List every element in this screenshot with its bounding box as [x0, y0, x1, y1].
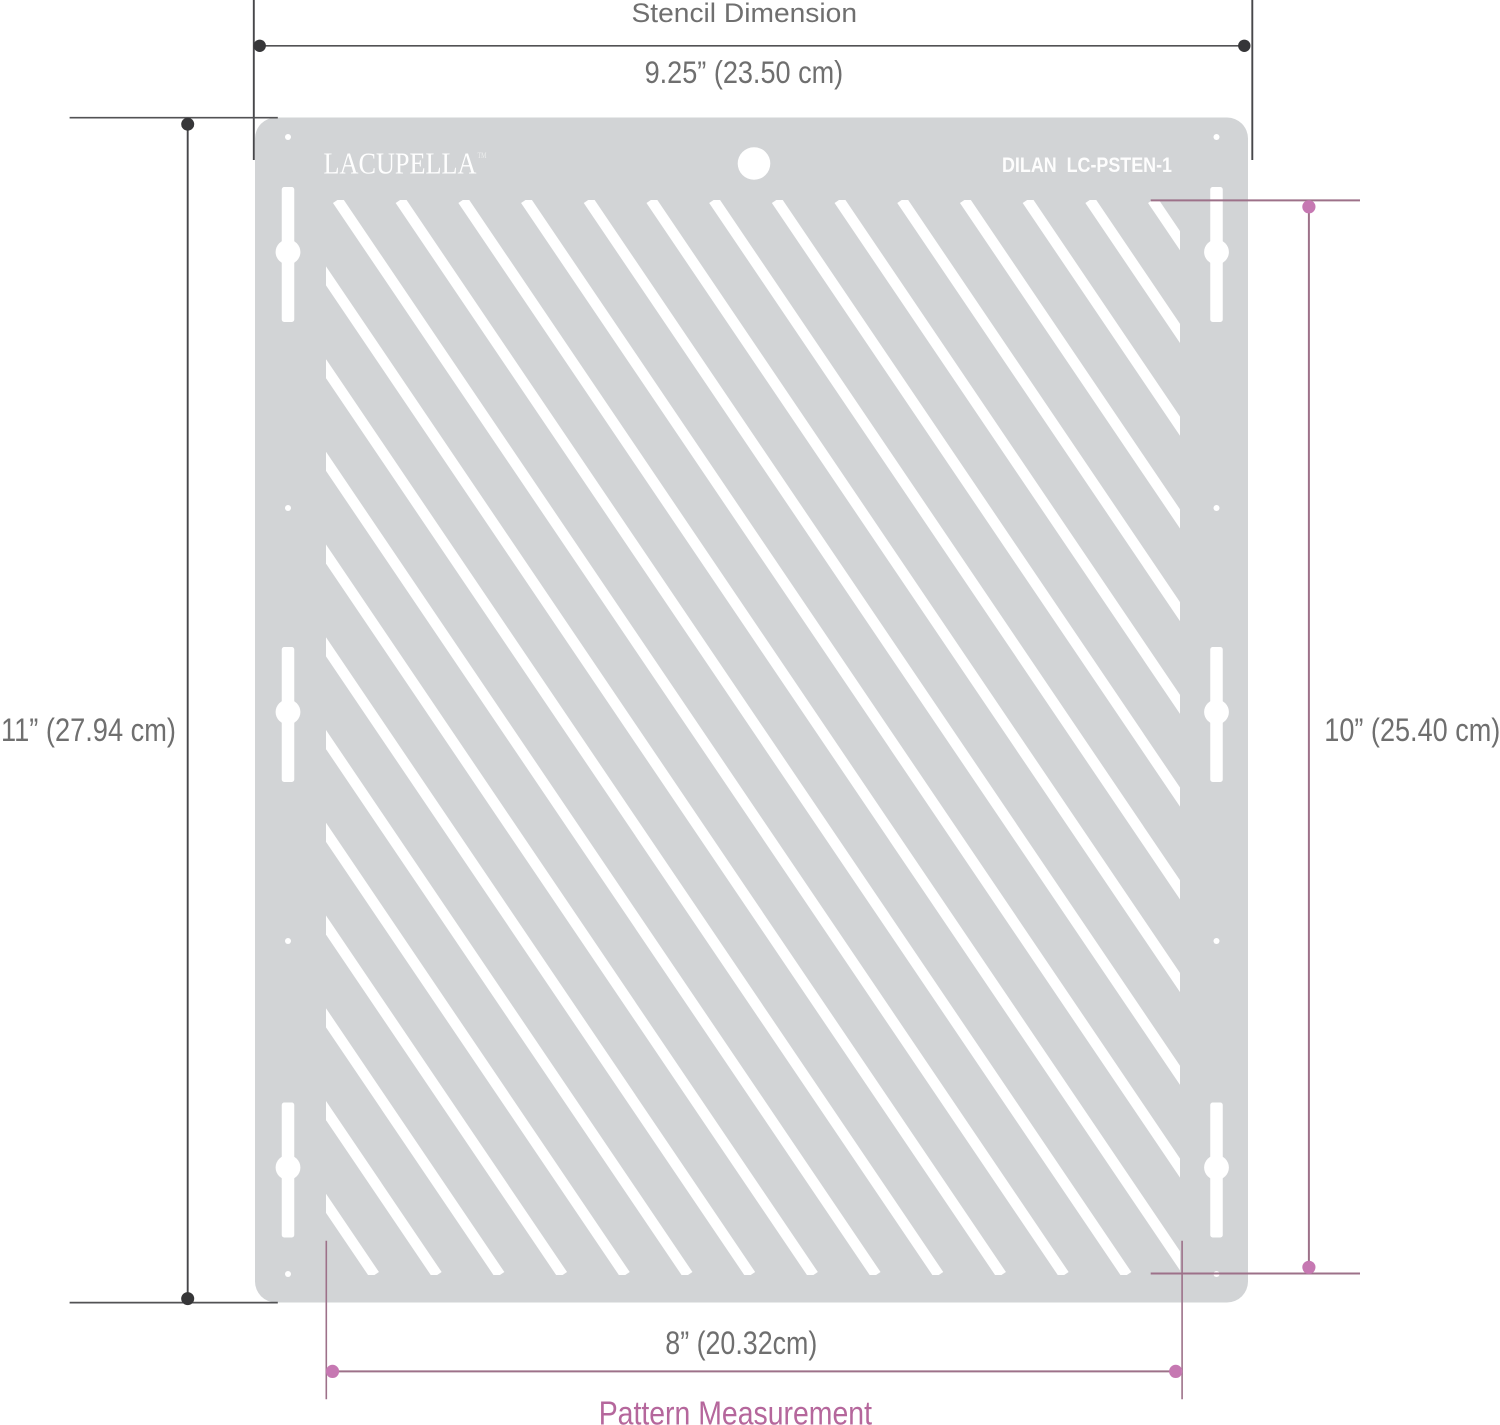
svg-text:DILAN LC-PSTEN-1: DILAN LC-PSTEN-1	[1002, 153, 1172, 177]
svg-text:Pattern Measurement: Pattern Measurement	[599, 1396, 873, 1425]
svg-text:9.25” (23.50 cm): 9.25” (23.50 cm)	[645, 54, 844, 90]
svg-text:8” (20.32cm): 8” (20.32cm)	[665, 1325, 817, 1361]
svg-text:Stencil Dimension: Stencil Dimension	[632, 0, 858, 28]
svg-text:LACUPELLA: LACUPELLA	[324, 147, 477, 181]
svg-text:11” (27.94 cm): 11” (27.94 cm)	[1, 712, 176, 748]
svg-text:TM: TM	[478, 150, 487, 160]
svg-text:10” (25.40 cm): 10” (25.40 cm)	[1324, 712, 1500, 748]
